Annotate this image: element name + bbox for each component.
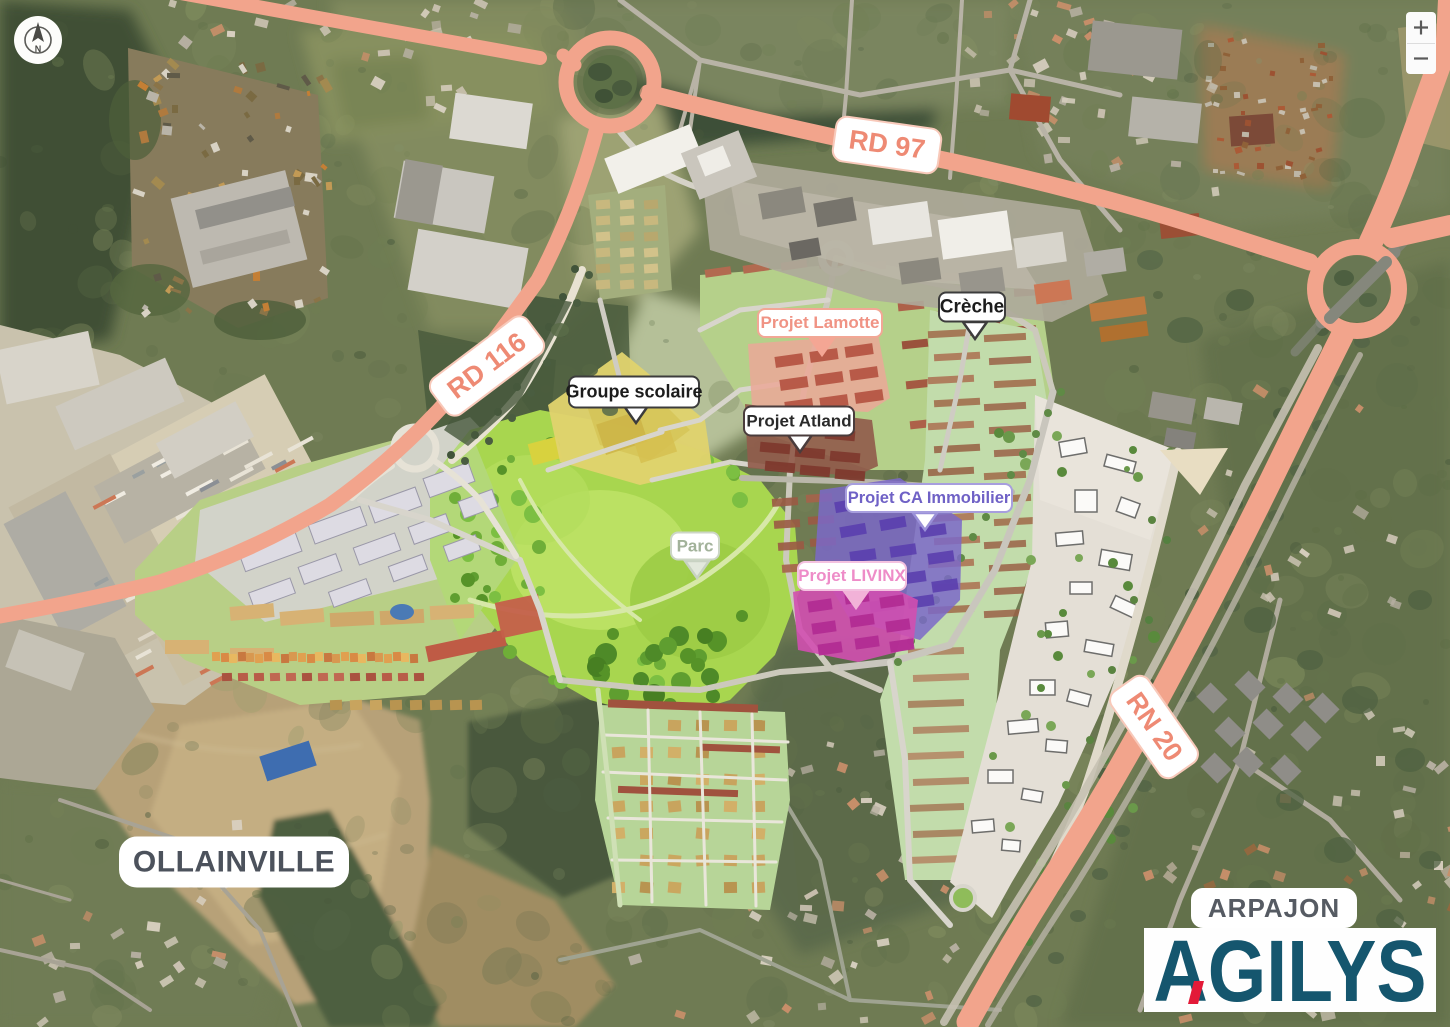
svg-text:N: N (35, 44, 42, 54)
